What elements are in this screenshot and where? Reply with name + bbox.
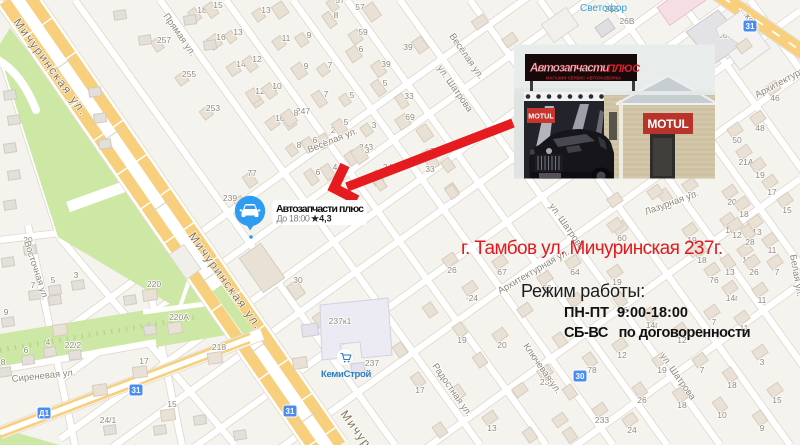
svg-text:ПН-ПТ 9:00-18:00: ПН-ПТ 9:00-18:00 (564, 305, 688, 321)
svg-text:г. Тамбов ул. Мичуринская 237г: г. Тамбов ул. Мичуринская 237г. (461, 238, 723, 259)
svg-text:19: 19 (755, 170, 765, 180)
svg-text:20: 20 (497, 340, 507, 350)
svg-text:MOTUL: MOTUL (647, 117, 688, 131)
svg-text:13: 13 (487, 423, 497, 433)
svg-text:39: 39 (403, 42, 413, 52)
svg-text:77: 77 (247, 168, 257, 178)
svg-text:30: 30 (293, 275, 303, 285)
svg-text:15: 15 (167, 399, 177, 409)
svg-text:33: 33 (425, 164, 435, 174)
svg-text:11: 11 (768, 245, 777, 255)
svg-text:67: 67 (497, 267, 507, 277)
svg-text:15: 15 (772, 395, 782, 405)
svg-text:3: 3 (74, 270, 79, 280)
svg-text:257: 257 (157, 35, 171, 45)
svg-text:31: 31 (132, 386, 141, 395)
svg-text:64: 64 (570, 267, 580, 277)
svg-text:24: 24 (627, 425, 637, 435)
svg-text:8: 8 (1, 357, 6, 367)
svg-text:255: 255 (182, 69, 196, 79)
svg-text:33: 33 (404, 91, 414, 101)
svg-text:253: 253 (206, 103, 220, 113)
svg-text:39: 39 (381, 59, 391, 69)
svg-text:СБ-ВС по договоренности: СБ-ВС по договоренности (564, 325, 750, 341)
svg-text:30: 30 (576, 372, 585, 381)
svg-text:237к1: 237к1 (329, 316, 352, 326)
svg-text:11: 11 (758, 295, 767, 305)
svg-text:31: 31 (286, 407, 295, 416)
svg-text:★4,3: ★4,3 (311, 214, 332, 224)
svg-text:12: 12 (252, 54, 262, 64)
svg-text:22/2: 22/2 (65, 340, 82, 350)
svg-text:15: 15 (782, 205, 792, 215)
svg-text:КемиСтрой: КемиСтрой (321, 369, 372, 380)
svg-text:7: 7 (775, 267, 780, 277)
svg-text:Светофор: Светофор (580, 2, 627, 14)
svg-text:69: 69 (405, 112, 415, 122)
svg-text:7: 7 (328, 60, 333, 70)
svg-text:Д1: Д1 (39, 409, 50, 418)
svg-text:18: 18 (739, 209, 749, 219)
svg-text:9: 9 (304, 61, 309, 71)
svg-text:26: 26 (637, 395, 647, 405)
svg-text:17: 17 (415, 385, 425, 395)
svg-text:8: 8 (334, 10, 339, 20)
svg-text:9: 9 (307, 30, 312, 40)
svg-text:12: 12 (617, 350, 627, 360)
svg-text:50: 50 (732, 135, 742, 145)
svg-text:233: 233 (595, 415, 609, 425)
svg-text:16: 16 (216, 32, 226, 42)
svg-text:220А: 220А (169, 312, 189, 322)
svg-text:48: 48 (755, 123, 765, 133)
svg-text:220: 220 (147, 279, 161, 289)
svg-text:10: 10 (272, 81, 282, 91)
svg-text:17: 17 (767, 187, 777, 197)
svg-text:Режим работы:: Режим работы: (521, 281, 645, 301)
svg-text:8: 8 (294, 108, 299, 118)
svg-text:24/1: 24/1 (100, 415, 117, 425)
svg-text:12: 12 (732, 230, 742, 240)
svg-text:31: 31 (746, 22, 755, 31)
svg-text:5: 5 (51, 275, 56, 285)
svg-text:9: 9 (4, 307, 9, 317)
svg-text:218: 218 (212, 342, 226, 352)
svg-text:10: 10 (717, 410, 727, 420)
svg-text:Автозапчасти: Автозапчасти (529, 63, 609, 75)
svg-text:3: 3 (760, 357, 765, 367)
svg-text:26В: 26В (619, 16, 634, 26)
svg-text:57: 57 (335, 0, 345, 5)
svg-text:57: 57 (355, 2, 365, 12)
svg-text:До 18:00: До 18:00 (277, 214, 310, 224)
svg-text:-24: -24 (466, 293, 479, 303)
svg-text:15: 15 (213, 0, 223, 10)
svg-text:26: 26 (749, 267, 759, 277)
svg-text:237: 237 (365, 358, 379, 368)
svg-text:239: 239 (223, 193, 237, 203)
svg-text:ПЛЮС: ПЛЮС (607, 63, 641, 75)
svg-text:76: 76 (709, 275, 719, 285)
svg-text:7: 7 (324, 89, 329, 99)
svg-text:6: 6 (359, 44, 364, 54)
svg-text:17: 17 (139, 356, 149, 366)
svg-text:13: 13 (725, 267, 735, 277)
svg-text:9: 9 (760, 423, 765, 433)
svg-text:MOTUL: MOTUL (528, 112, 554, 121)
svg-text:13: 13 (261, 5, 271, 15)
svg-text:78: 78 (587, 365, 597, 375)
svg-text:3: 3 (365, 145, 370, 155)
svg-text:11: 11 (282, 33, 291, 43)
svg-text:14г: 14г (726, 293, 739, 303)
svg-text:18: 18 (677, 400, 687, 410)
svg-text:26: 26 (447, 265, 457, 275)
svg-text:6: 6 (24, 345, 29, 355)
svg-text:19: 19 (457, 335, 467, 345)
svg-text:13: 13 (233, 27, 243, 37)
svg-text:28: 28 (745, 237, 755, 247)
svg-text:МАГАЗИН·СЕРВИС·АВТОРАЗБОРКА: МАГАЗИН·СЕРВИС·АВТОРАЗБОРКА (546, 76, 621, 81)
svg-text:46: 46 (770, 93, 780, 103)
svg-text:59: 59 (358, 27, 368, 37)
svg-text:7: 7 (700, 365, 705, 375)
svg-text:5: 5 (350, 90, 355, 100)
svg-text:3: 3 (372, 120, 377, 130)
svg-text:4: 4 (46, 337, 51, 347)
svg-text:5: 5 (344, 117, 349, 127)
svg-text:5: 5 (383, 78, 388, 88)
svg-text:18: 18 (727, 380, 737, 390)
